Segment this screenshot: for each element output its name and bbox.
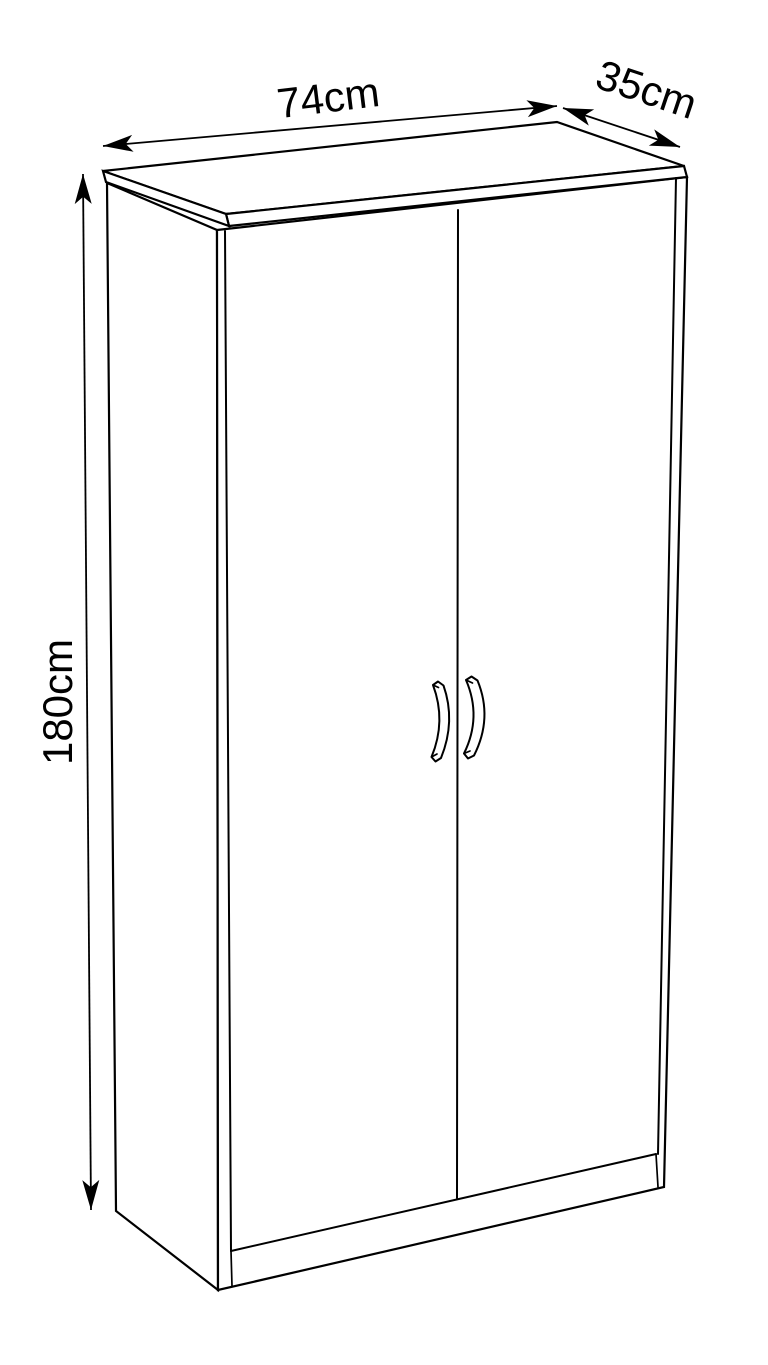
height-dimension-label: 180cm	[34, 639, 81, 765]
door-gap-line	[457, 210, 458, 1198]
cabinet-front-face	[217, 177, 687, 1290]
depth-dimension-label: 35cm	[590, 51, 702, 128]
dimension-diagram: 74cm 35cm 180cm	[0, 0, 768, 1365]
cabinet-left-side-panel	[107, 183, 218, 1290]
cabinet	[103, 122, 687, 1290]
width-dimension-label: 74cm	[274, 68, 382, 127]
height-dimension-line	[83, 174, 91, 1210]
cabinet-drawing: 74cm 35cm 180cm	[0, 0, 768, 1365]
plinth-left-step	[231, 1251, 232, 1286]
height-dimension: 180cm	[34, 174, 99, 1210]
